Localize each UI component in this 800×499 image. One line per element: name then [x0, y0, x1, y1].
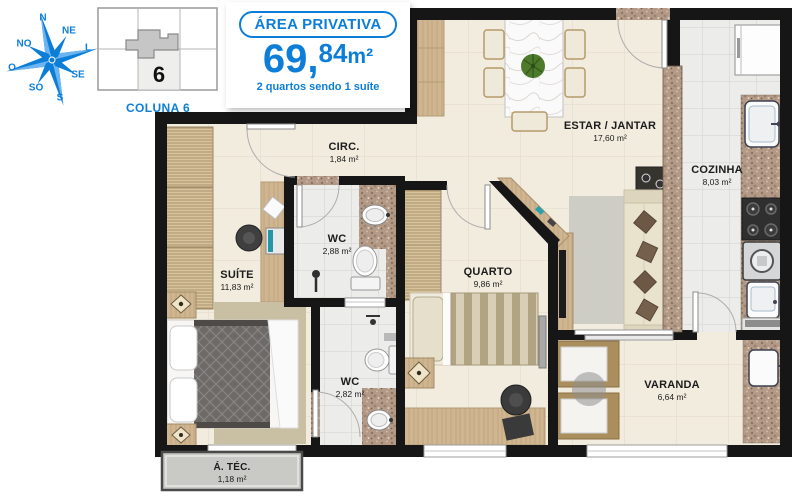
- area-decimals: 84: [319, 40, 348, 66]
- compass-star: [2, 2, 102, 114]
- room-label-area-tecnica: Á. TÉC. 1,18 m²: [214, 462, 251, 484]
- area-main: 69,: [263, 39, 319, 79]
- room-label-estar: ESTAR / JANTAR 17,60 m²: [564, 120, 656, 143]
- balcony-sink: [749, 350, 778, 386]
- fridge: [735, 25, 781, 75]
- sofa: [624, 190, 664, 338]
- building-key-plan: 6 COLUNA 6: [96, 6, 220, 114]
- badge-title: ÁREA PRIVATIVA: [239, 11, 398, 38]
- compass-label-s: S: [57, 93, 64, 104]
- compass-label-no: NO: [17, 39, 32, 50]
- compass-label-se: SE: [71, 70, 84, 81]
- area-value: 69, 84 m²: [226, 39, 410, 79]
- room-label-wc-social: WC 2,88 m²: [323, 233, 352, 256]
- round-table: [572, 372, 606, 406]
- compass-rose: N NE L SE S SO O NO: [2, 2, 102, 114]
- keyplan-caption: COLUNA 6: [96, 101, 220, 115]
- room-label-cozinha: COZINHA 8,03 m²: [691, 164, 743, 187]
- sliding-door: [575, 330, 673, 340]
- room-label-suite: SUÍTE 11,83 m²: [220, 269, 253, 292]
- shower-head: [312, 270, 320, 278]
- compass-label-so: SO: [29, 83, 43, 94]
- compass-label-n: N: [39, 13, 46, 24]
- living-rug: [569, 196, 631, 324]
- room-label-quarto: QUARTO 9,86 m²: [464, 266, 513, 289]
- washer: [743, 242, 781, 280]
- suite-wardrobe: [166, 127, 213, 309]
- sideboard: [417, 14, 444, 116]
- unit-number: 6: [153, 62, 165, 87]
- room-label-wc-suite: WC 2,82 m²: [336, 376, 365, 399]
- double-bed: [167, 320, 298, 428]
- compass-label-l: L: [85, 43, 91, 54]
- badge-subtitle: 2 quartos sendo 1 suíte: [226, 81, 410, 93]
- compass-label-ne: NE: [62, 26, 76, 37]
- private-area-badge: ÁREA PRIVATIVA 69, 84 m² 2 quartos sendo…: [226, 2, 410, 108]
- floorplan-page: CIRC. 1,84 m² WC 2,88 m² SUÍTE 11,83 m² …: [0, 0, 800, 499]
- mirror: [539, 316, 546, 368]
- key-plan-grid: 6: [96, 6, 220, 94]
- single-bed: [410, 293, 538, 365]
- room-label-circ: CIRC. 1,84 m²: [329, 141, 360, 164]
- tv: [559, 250, 566, 318]
- stove: [742, 198, 781, 240]
- room-label-varanda: VARANDA 6,64 m²: [644, 379, 700, 402]
- kitchen-divider-wall: [663, 66, 682, 332]
- compass-label-o: O: [8, 63, 16, 74]
- area-unit: m²: [347, 46, 373, 67]
